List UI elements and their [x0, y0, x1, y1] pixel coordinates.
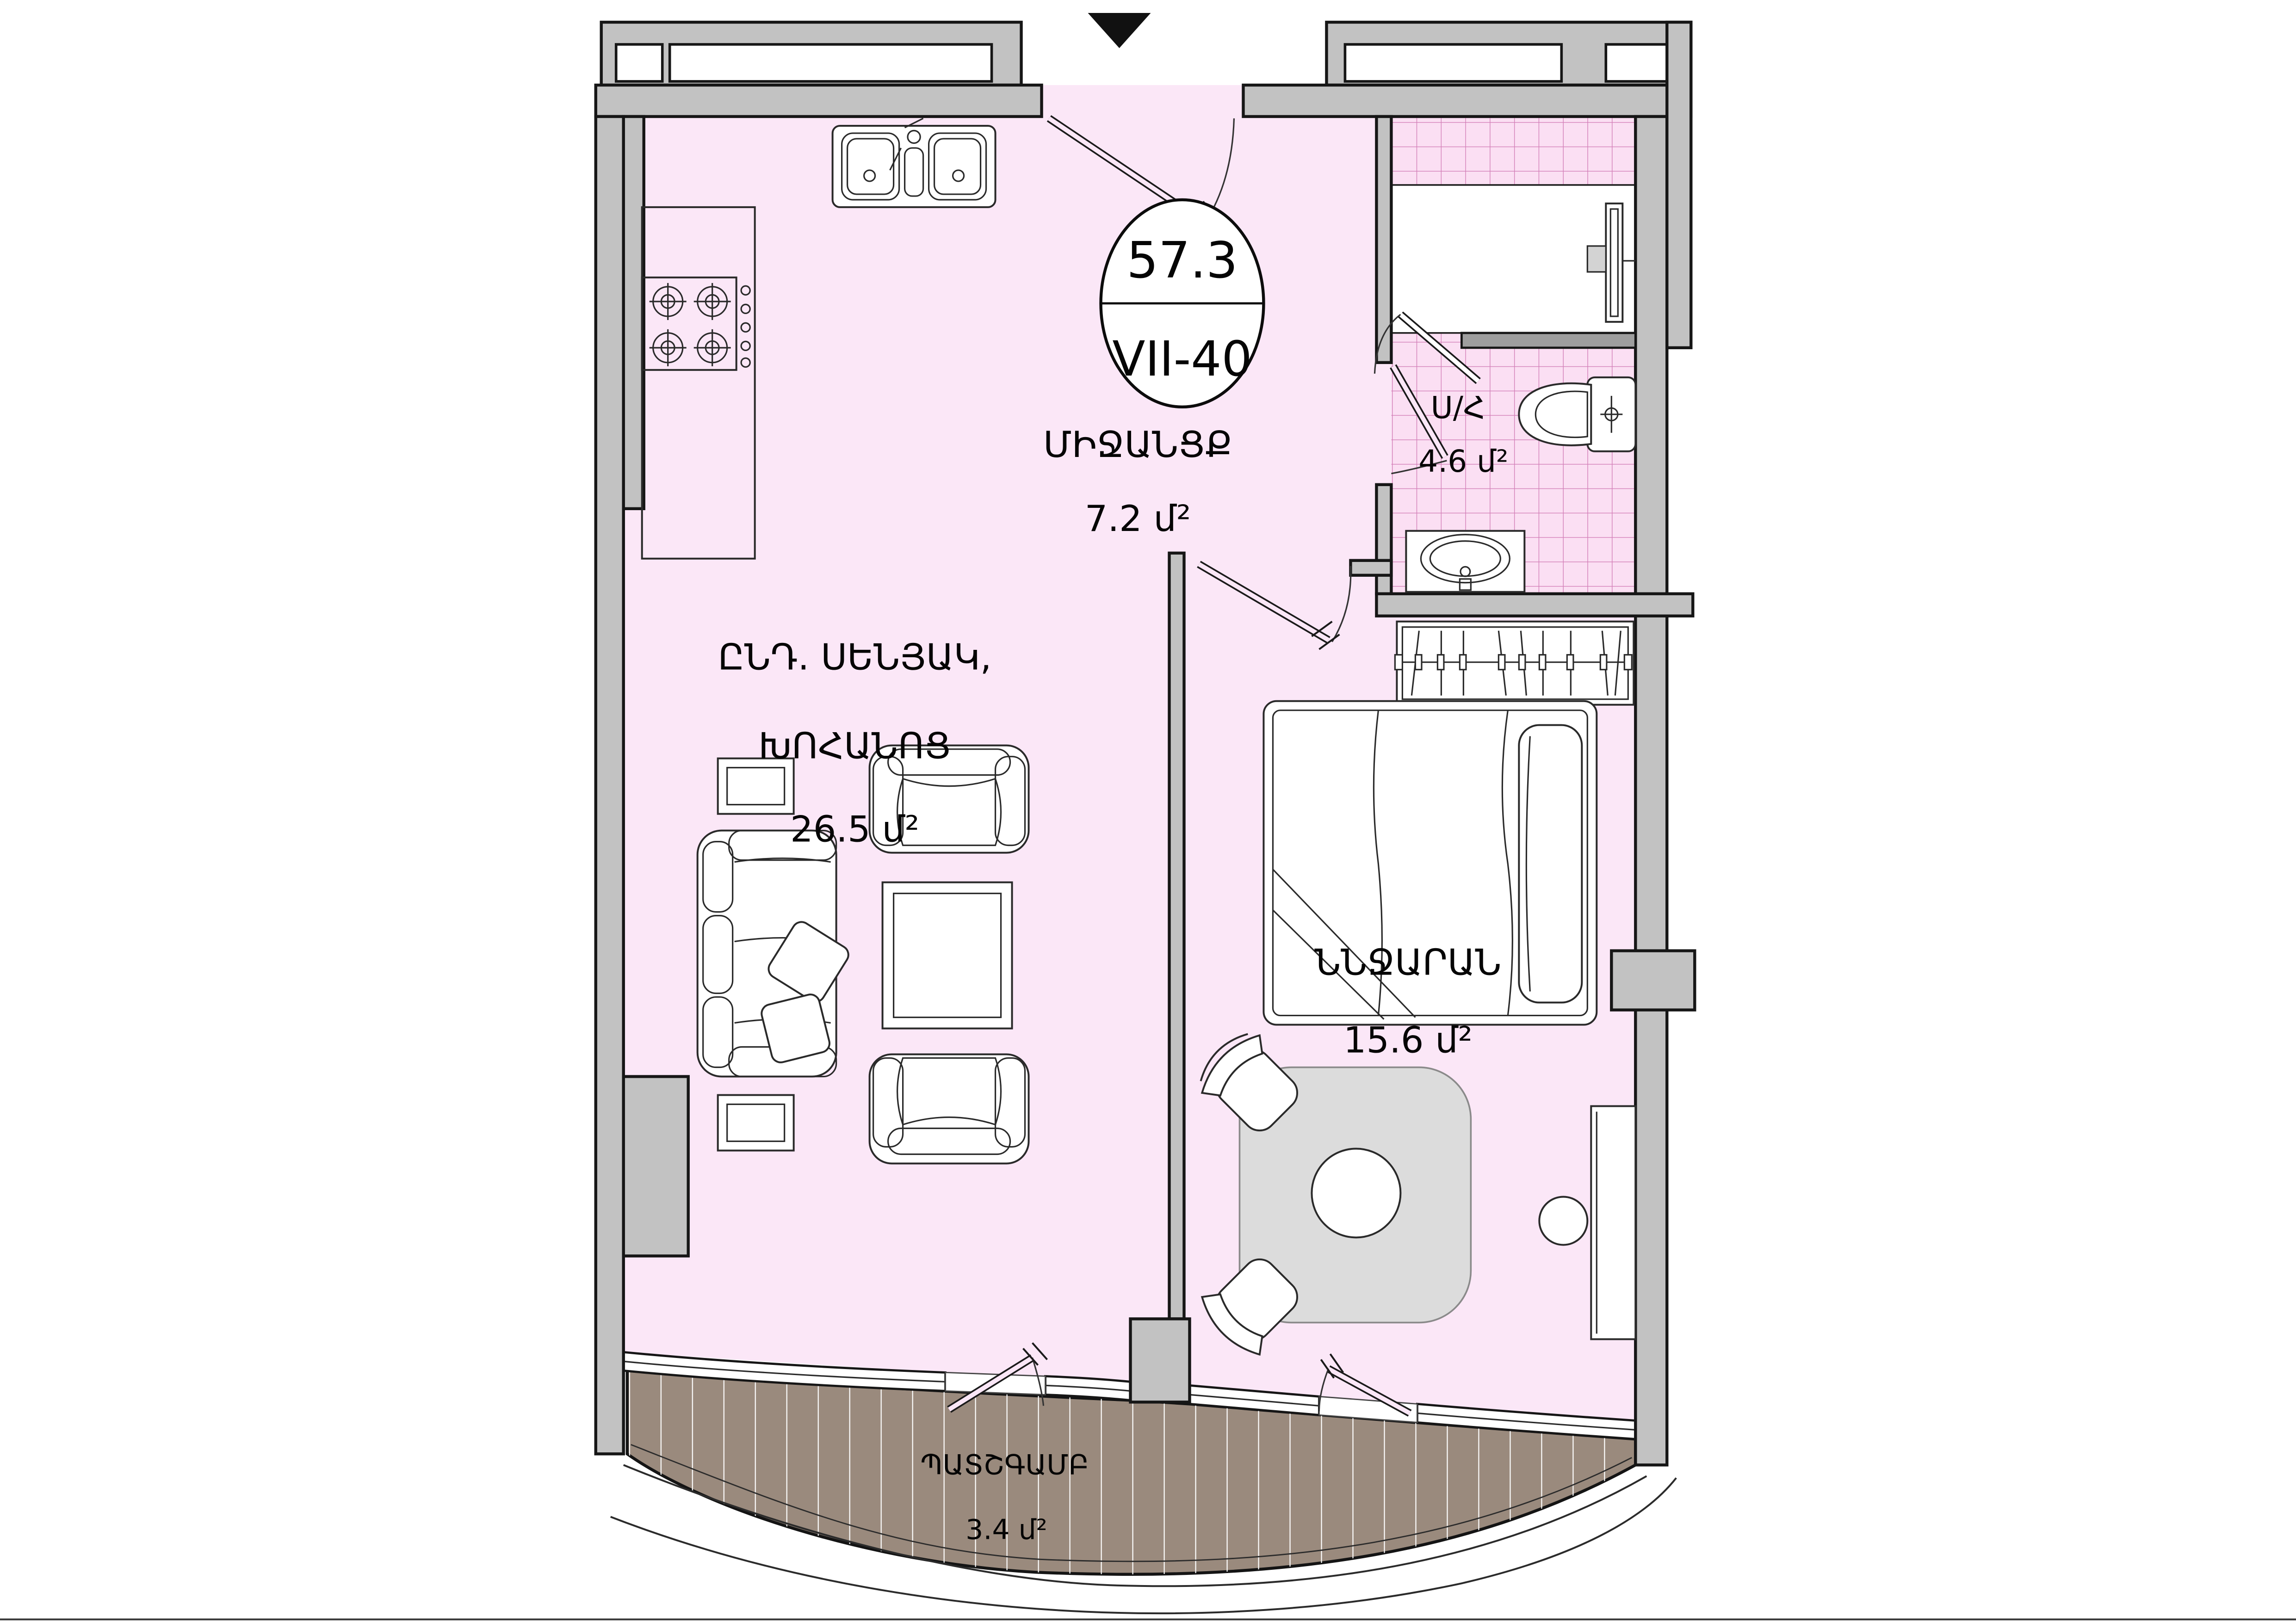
wall-bedroom-door-header	[1350, 561, 1391, 575]
armchair-bottom	[870, 1055, 1029, 1164]
bathroom-area: 4.6 մ²	[1418, 444, 1508, 479]
closet	[1395, 622, 1634, 705]
wall-right	[1635, 117, 1667, 1465]
window-top-1	[616, 44, 662, 81]
balcony-area: 3.4 մ²	[965, 1513, 1047, 1546]
shower-tile-grid	[1391, 117, 1635, 185]
balcony-label: ՊԱՏՇԳԱՄԲ	[921, 1449, 1089, 1481]
coffee-table	[883, 882, 1012, 1029]
wall-bathroom-bottom	[1376, 594, 1693, 616]
living-area: 26.5 մ²	[790, 809, 919, 851]
wall-top-right-inner	[1243, 85, 1691, 117]
wall-left-pier	[624, 1077, 688, 1256]
kitchen-sink	[833, 118, 996, 207]
sofa	[698, 831, 852, 1077]
living-label-line1: ԸՆԴ. ՍԵՆՅԱԿ,	[718, 637, 992, 679]
bedroom-table	[1312, 1148, 1400, 1237]
floor-plan: 57.3 VII-40 ՄԻՋԱՆՑՔ 7.2 մ² Ս/Հ 4.6 մ² ԸՆ…	[0, 0, 2296, 1622]
window-top-3	[1345, 44, 1561, 81]
sofa-pillow-2	[760, 993, 831, 1064]
wall-right-cross-pier	[1611, 951, 1695, 1010]
wall-living-bedroom	[1169, 553, 1184, 1319]
badge-unit-code: VII-40	[1112, 331, 1252, 387]
bedroom-area: 15.6 մ²	[1343, 1020, 1473, 1061]
entrance-threshold-floor	[1042, 85, 1244, 117]
window-top-2	[670, 44, 992, 81]
badge-area-value: 57.3	[1126, 232, 1238, 290]
living-label-line2: ԽՈՀԱՆՈՑ	[758, 726, 951, 767]
unit-badge: 57.3 VII-40	[1101, 200, 1264, 407]
side-table-bottom	[718, 1095, 794, 1151]
corridor-label: ՄԻՋԱՆՑՔ	[1043, 424, 1232, 466]
bedroom-label: ՆՆՋԱՐԱՆ	[1314, 942, 1501, 984]
corridor-area: 7.2 մ²	[1085, 498, 1191, 540]
entrance-triangle-down-icon	[1088, 13, 1151, 48]
wall-left	[596, 117, 624, 1454]
wall-top-left-inner	[596, 85, 1042, 117]
wall-right-corner-pier	[1667, 22, 1691, 348]
wall-window-pier	[1131, 1319, 1190, 1402]
bathroom-sink	[1406, 531, 1524, 592]
wall-left-kitchen-thick	[624, 117, 644, 509]
bathroom-label: Ս/Հ	[1430, 390, 1485, 426]
window-top-4	[1606, 44, 1669, 81]
wall-bathroom-left-lower	[1376, 485, 1391, 594]
shower-partition	[1461, 333, 1635, 348]
desk-stool	[1539, 1197, 1587, 1245]
